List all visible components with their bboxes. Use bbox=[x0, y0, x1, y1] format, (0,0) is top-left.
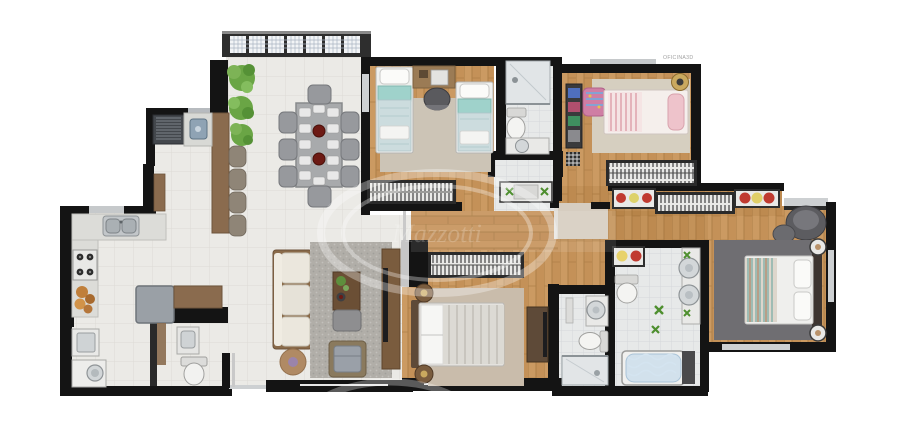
svg-text:Mazzotti: Mazzotti bbox=[391, 219, 482, 248]
svg-text:OFICINA3D: OFICINA3D bbox=[663, 55, 693, 61]
